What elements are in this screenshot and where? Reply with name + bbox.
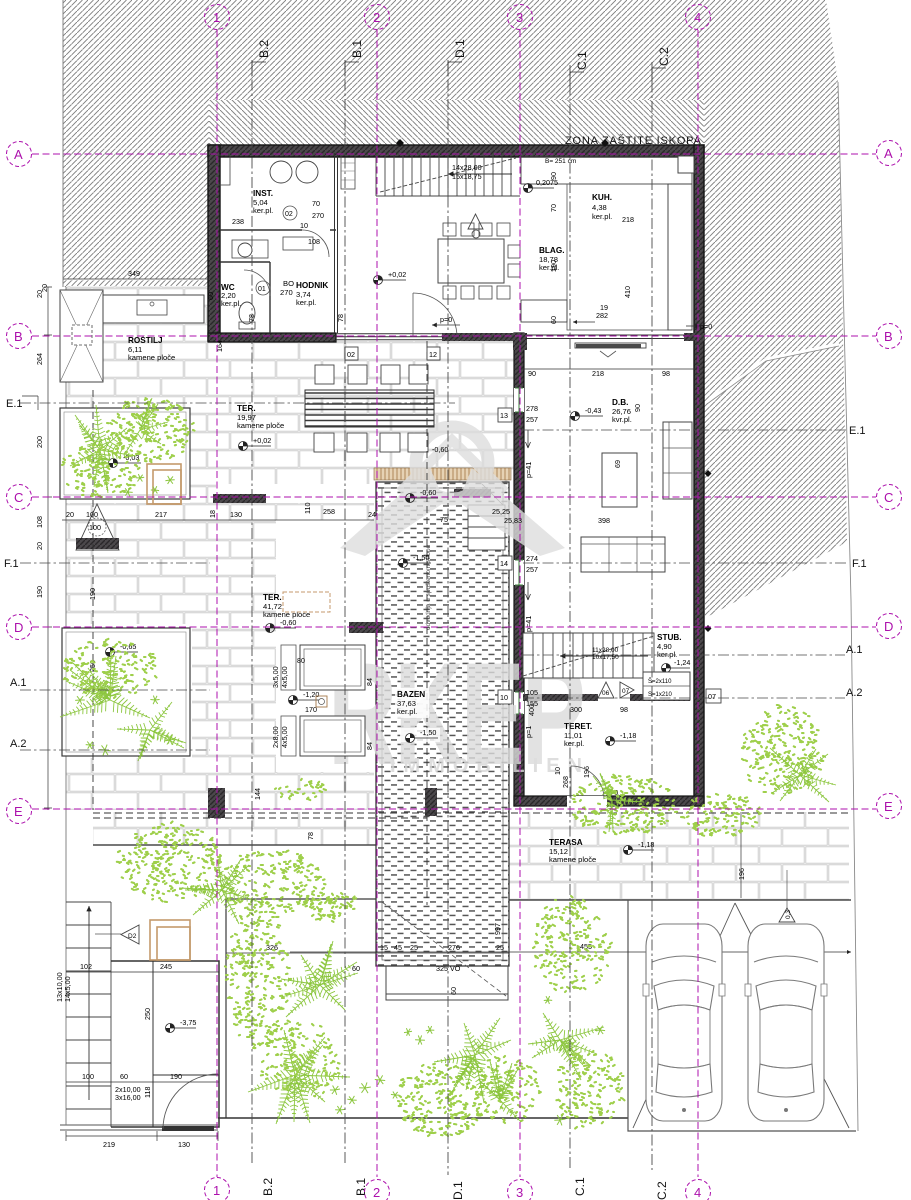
svg-text:C.2: C.2	[655, 1181, 669, 1200]
svg-text:BLAG.: BLAG.	[539, 246, 564, 255]
svg-text:p=1: p=1	[524, 726, 533, 738]
svg-text:B= 251 cm: B= 251 cm	[545, 158, 576, 165]
svg-text:TERET.: TERET.	[564, 722, 592, 731]
svg-text:190: 190	[549, 260, 558, 272]
svg-text:144: 144	[253, 788, 262, 800]
svg-text:15: 15	[380, 943, 388, 952]
svg-text:STUB.: STUB.	[657, 633, 682, 642]
svg-text:kvr.pl.: kvr.pl.	[612, 415, 632, 424]
svg-text:278: 278	[526, 404, 538, 413]
svg-text:-1,50: -1,50	[413, 553, 429, 562]
svg-text:C: C	[884, 490, 893, 505]
svg-text:257: 257	[526, 565, 538, 574]
svg-text:INST.: INST.	[253, 189, 273, 198]
svg-text:A: A	[884, 146, 893, 161]
svg-text:F.1: F.1	[4, 558, 19, 570]
svg-text:70: 70	[312, 199, 320, 208]
svg-text:217: 217	[155, 510, 167, 519]
svg-text:84: 84	[365, 678, 374, 686]
svg-text:90: 90	[528, 369, 536, 378]
svg-text:4: 4	[694, 10, 701, 25]
svg-text:-0,60: -0,60	[280, 618, 296, 627]
svg-text:108: 108	[308, 237, 320, 246]
svg-text:0,3: 0,3	[785, 910, 792, 919]
svg-text:90: 90	[549, 172, 558, 180]
svg-text:400: 400	[527, 704, 536, 716]
svg-text:11x28,00: 11x28,00	[592, 647, 619, 654]
svg-text:196: 196	[737, 868, 746, 880]
svg-text:14: 14	[500, 559, 508, 568]
svg-text:02: 02	[347, 350, 355, 359]
svg-text:-3,75: -3,75	[180, 1018, 196, 1027]
svg-text:60: 60	[206, 292, 215, 300]
svg-text:-1,50: -1,50	[420, 728, 436, 737]
svg-text:80: 80	[297, 656, 305, 665]
svg-text:250: 250	[143, 1008, 152, 1020]
svg-text:01: 01	[258, 286, 266, 293]
svg-text:2: 2	[373, 10, 380, 25]
svg-text:15x18,75: 15x18,75	[452, 172, 482, 181]
svg-text:A.2: A.2	[846, 687, 863, 699]
svg-text:D.1: D.1	[451, 1181, 465, 1200]
svg-text:264: 264	[35, 353, 44, 365]
svg-text:BO: BO	[283, 279, 294, 288]
svg-text:108: 108	[35, 516, 44, 528]
svg-text:3: 3	[516, 10, 523, 25]
svg-text:24: 24	[368, 510, 376, 519]
svg-text:349: 349	[128, 269, 140, 278]
svg-text:100: 100	[89, 523, 101, 532]
svg-text:D2: D2	[128, 933, 137, 940]
svg-text:D: D	[14, 620, 23, 635]
svg-text:25: 25	[496, 943, 504, 952]
svg-text:C.1: C.1	[573, 1177, 587, 1196]
svg-text:14x5,00: 14x5,00	[63, 976, 72, 1002]
svg-text:100: 100	[82, 1072, 94, 1081]
svg-text:kamene ploče: kamene ploče	[237, 421, 284, 430]
svg-text:-0,43: -0,43	[585, 406, 601, 415]
svg-text:ker.pl.: ker.pl.	[221, 299, 241, 308]
svg-text:245: 245	[160, 962, 172, 971]
svg-text:270: 270	[312, 211, 324, 220]
svg-text:ker.pl.: ker.pl.	[253, 206, 273, 215]
svg-text:78: 78	[306, 832, 315, 840]
svg-text:ker.pl.: ker.pl.	[397, 707, 417, 716]
svg-text:10: 10	[300, 221, 308, 230]
svg-text:ker.pl.: ker.pl.	[296, 298, 316, 307]
svg-text:4,38: 4,38	[592, 203, 607, 212]
svg-text:98: 98	[620, 705, 628, 714]
svg-text:300: 300	[570, 705, 582, 714]
svg-text:102: 102	[80, 962, 92, 971]
svg-text:BAZEN: BAZEN	[397, 690, 425, 699]
svg-text:190: 190	[88, 588, 97, 600]
svg-text:276: 276	[448, 943, 460, 952]
svg-text:69: 69	[613, 460, 622, 468]
svg-text:F.1: F.1	[852, 558, 867, 570]
svg-text:B.1: B.1	[350, 40, 364, 58]
svg-text:A.2: A.2	[10, 738, 27, 750]
svg-text:KUH.: KUH.	[592, 193, 612, 202]
svg-text:170: 170	[305, 705, 317, 714]
svg-text:20: 20	[66, 510, 74, 519]
svg-text:D: D	[884, 619, 893, 634]
svg-text:p=0: p=0	[700, 322, 712, 331]
svg-text:TER.: TER.	[237, 404, 256, 413]
svg-text:07: 07	[708, 692, 716, 701]
svg-text:+0,02: +0,02	[388, 270, 406, 279]
svg-text:118: 118	[143, 1087, 152, 1098]
svg-text:06: 06	[602, 690, 610, 697]
svg-text:C: C	[14, 490, 23, 505]
svg-text:C.2: C.2	[657, 47, 671, 66]
svg-text:B: B	[14, 329, 23, 344]
svg-text:25,25: 25,25	[492, 507, 510, 516]
svg-text:ker.pl.: ker.pl.	[564, 739, 584, 748]
svg-text:02: 02	[285, 211, 293, 218]
svg-text:130: 130	[230, 510, 242, 519]
svg-text:3x5,00: 3x5,00	[271, 666, 280, 688]
svg-text:4x5,00: 4x5,00	[280, 666, 289, 688]
svg-text:25: 25	[410, 943, 418, 952]
svg-text:20: 20	[40, 284, 49, 292]
svg-text:-1,18: -1,18	[620, 731, 636, 740]
svg-text:12: 12	[429, 350, 437, 359]
svg-text:A: A	[14, 147, 23, 162]
svg-text:70: 70	[549, 204, 558, 212]
svg-text:B: B	[884, 329, 893, 344]
svg-text:kamene ploče: kamene ploče	[549, 855, 596, 864]
svg-text:110: 110	[303, 503, 312, 514]
svg-text:60: 60	[549, 316, 558, 324]
svg-text:190: 190	[170, 1072, 182, 1081]
svg-text:105: 105	[526, 688, 538, 697]
svg-text:13: 13	[500, 411, 508, 420]
svg-text:100: 100	[86, 510, 98, 519]
svg-text:130: 130	[178, 1140, 190, 1149]
svg-text:B.1: B.1	[354, 1178, 368, 1196]
svg-text:200: 200	[35, 436, 44, 448]
svg-text:410: 410	[623, 286, 632, 298]
svg-text:238: 238	[232, 217, 244, 226]
svg-text:25,83: 25,83	[504, 516, 522, 525]
svg-text:-1,24: -1,24	[674, 658, 690, 667]
svg-text:218: 218	[592, 369, 604, 378]
svg-text:60: 60	[449, 987, 458, 995]
svg-text:4x5,00: 4x5,00	[280, 726, 289, 748]
svg-text:398: 398	[598, 516, 610, 525]
svg-text:TER.: TER.	[263, 593, 282, 602]
svg-text:E.1: E.1	[849, 425, 866, 437]
svg-text:282: 282	[596, 311, 608, 320]
svg-text:B.2: B.2	[257, 40, 271, 58]
svg-text:78: 78	[247, 314, 256, 322]
svg-text:90: 90	[633, 404, 642, 412]
svg-text:14x28,00: 14x28,00	[452, 163, 482, 172]
svg-text:219: 219	[103, 1140, 115, 1149]
svg-text:84: 84	[365, 742, 374, 750]
svg-text:p=41: p=41	[524, 616, 533, 632]
svg-text:ker.pl.: ker.pl.	[592, 212, 612, 221]
svg-text:20: 20	[35, 542, 44, 550]
svg-text:164: 164	[215, 340, 224, 352]
svg-text:4: 4	[694, 1185, 701, 1200]
svg-text:274: 274	[526, 554, 538, 563]
svg-text:997: 997	[493, 923, 502, 935]
svg-text:3: 3	[516, 1185, 523, 1200]
svg-text:-0,65: -0,65	[120, 642, 136, 651]
svg-text:kamene ploče: kamene ploče	[128, 353, 175, 362]
svg-text:2: 2	[373, 1185, 380, 1200]
svg-text:HODNIK: HODNIK	[296, 281, 328, 290]
svg-text:+0,02: +0,02	[253, 436, 271, 445]
svg-text:218: 218	[622, 215, 634, 224]
svg-text:A.1: A.1	[10, 677, 27, 689]
svg-text:60: 60	[120, 1072, 128, 1081]
svg-text:257: 257	[526, 415, 538, 424]
svg-text:-0,60: -0,60	[420, 488, 436, 497]
svg-text:190: 190	[35, 586, 44, 598]
svg-text:1: 1	[213, 1183, 220, 1198]
svg-text:18: 18	[208, 510, 217, 518]
svg-text:A.1: A.1	[846, 644, 863, 656]
svg-text:ZONA ZAŠTITE ISKOPA: ZONA ZAŠTITE ISKOPA	[565, 134, 702, 147]
svg-text:45: 45	[394, 943, 402, 952]
svg-text:75: 75	[440, 515, 448, 524]
svg-text:D.1: D.1	[453, 39, 467, 58]
svg-text:07: 07	[622, 688, 630, 695]
svg-text:-0,60: -0,60	[432, 445, 448, 454]
svg-text:10: 10	[553, 767, 562, 775]
svg-text:p=0: p=0	[440, 315, 452, 324]
svg-text:C.1: C.1	[575, 51, 589, 70]
svg-text:270: 270	[280, 288, 293, 297]
svg-text:E: E	[14, 804, 23, 819]
svg-text:78: 78	[336, 314, 345, 322]
svg-text:268: 268	[561, 776, 570, 788]
svg-text:-1,20: -1,20	[303, 690, 319, 699]
svg-text:B.2: B.2	[261, 1178, 275, 1196]
svg-text:2x8,00: 2x8,00	[271, 726, 280, 748]
svg-text:3x16,00: 3x16,00	[115, 1093, 141, 1102]
svg-text:TERASA: TERASA	[549, 838, 583, 847]
svg-text:1: 1	[213, 10, 220, 25]
svg-text:p=41: p=41	[524, 462, 533, 478]
svg-text:D.B.: D.B.	[612, 398, 628, 407]
svg-text:E: E	[884, 799, 893, 814]
svg-text:98: 98	[662, 369, 670, 378]
svg-text:258: 258	[323, 507, 335, 516]
svg-text:10: 10	[500, 693, 508, 702]
svg-text:E.1: E.1	[6, 398, 23, 410]
